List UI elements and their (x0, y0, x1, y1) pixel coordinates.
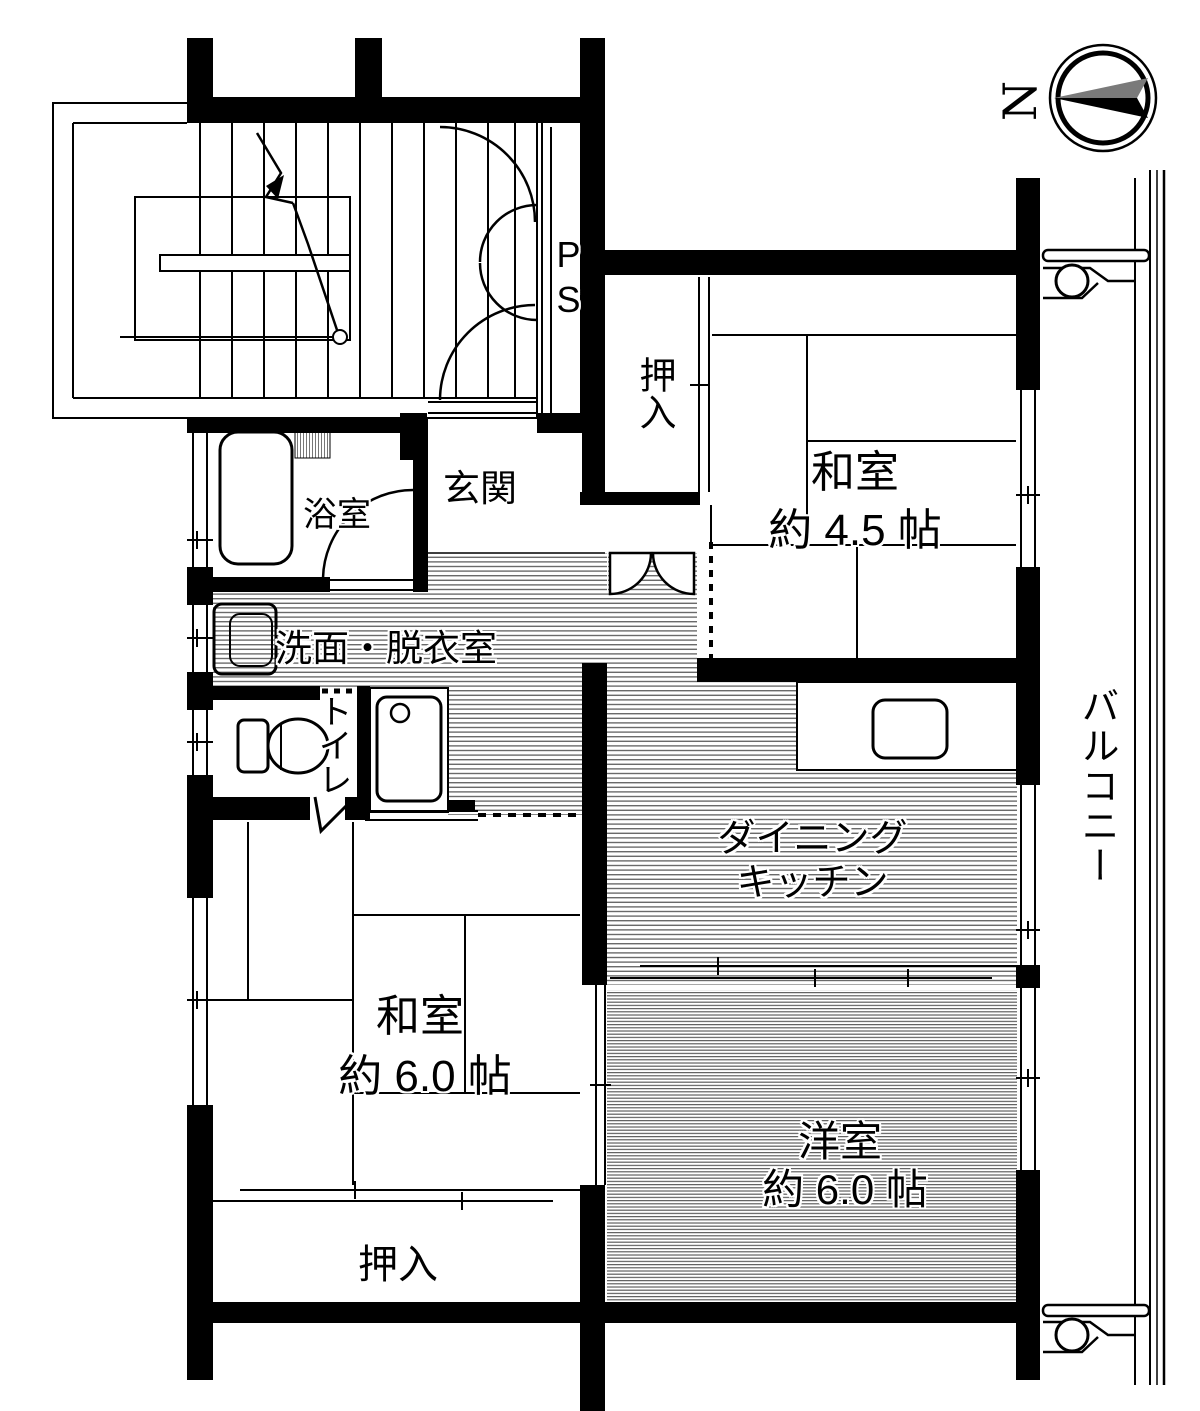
label-balcony: バルコニー (1069, 686, 1124, 886)
label-western-room-size: 約 6.0 帖 (720, 1156, 970, 1217)
faucet-icon-top (1043, 250, 1149, 298)
floor-plan: PS N 玄関 浴室 押入 和室 約 4.5 帖 洗面・脱衣室 トイレ ダイニン… (0, 0, 1200, 1411)
label-bathroom: 浴室 (303, 487, 371, 536)
label-closet-upper: 押入 (627, 356, 681, 430)
label-washroom: 洗面・脱衣室 (275, 618, 497, 672)
staircase (53, 103, 537, 418)
label-japanese-room-45-name: 和室 (755, 436, 955, 500)
label-ps: PS (547, 234, 589, 324)
compass-icon (1050, 45, 1156, 151)
label-japanese-room-6-size: 約 6.0 帖 (300, 1040, 550, 1104)
balcony-rail (1135, 170, 1164, 1385)
label-closet-lower: 押入 (358, 1232, 438, 1290)
label-japanese-room-45-size: 約 4.5 帖 (730, 494, 980, 558)
faucet-icon-bottom (1043, 1305, 1149, 1352)
label-compass-north: N (993, 81, 1047, 121)
label-toilet: トイレ (308, 694, 357, 796)
label-japanese-room-6-name: 和室 (320, 980, 520, 1044)
floorplan-drawing (0, 0, 1200, 1411)
label-dining-kitchen-line2: キッチン (710, 851, 915, 906)
label-entrance: 玄関 (443, 458, 517, 512)
ps-shaft-and-doors (428, 123, 551, 430)
